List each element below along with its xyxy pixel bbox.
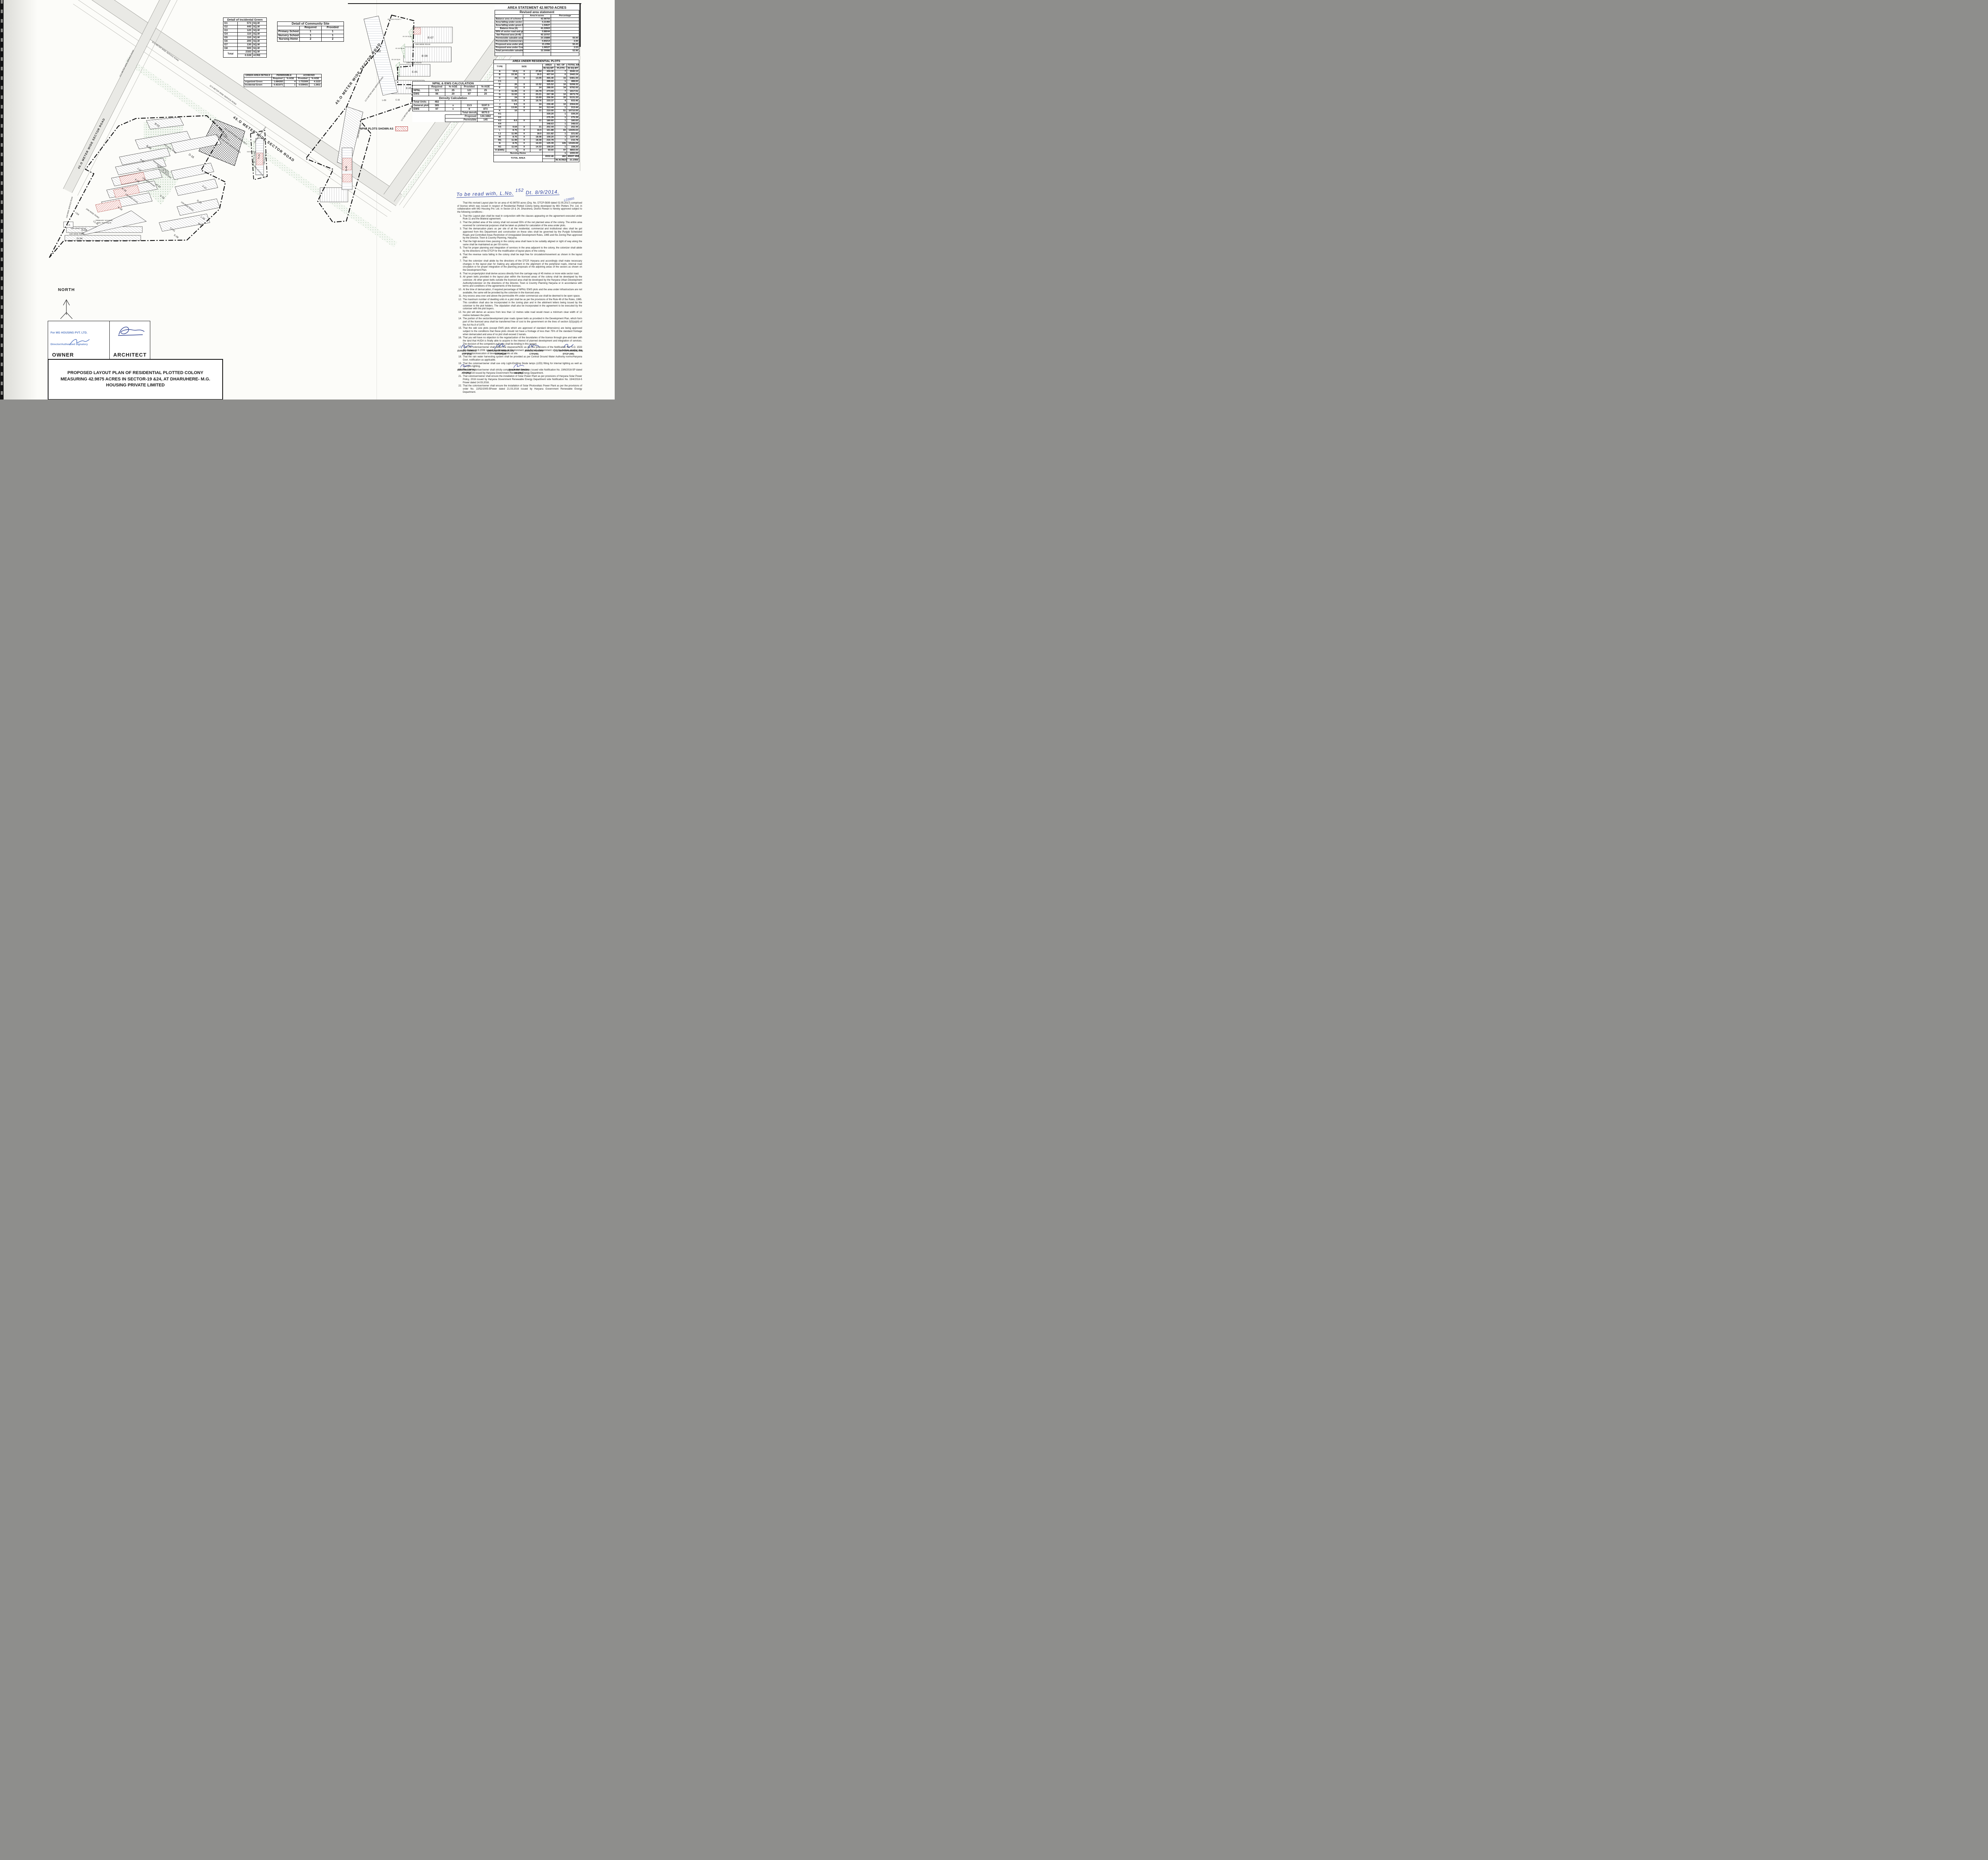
- table-cell: 202.44: [542, 126, 555, 129]
- table-cell: N1: [494, 145, 506, 149]
- plot-label: L-09: [382, 99, 386, 102]
- table-cell: 273.93: [542, 90, 555, 93]
- table-cell: G1: [223, 22, 238, 25]
- table-cell: [518, 122, 530, 126]
- note-item: That the plotted area of the colony shal…: [462, 221, 582, 227]
- table-cell: Balance Area (A): [495, 27, 523, 30]
- table-cell: 10: [555, 103, 567, 106]
- table-cell: 2: [299, 38, 322, 42]
- table-cell: Permisisble saleable area: [495, 37, 523, 40]
- table-row: Total Units482: [413, 100, 494, 104]
- table-row: G8500SQ.M: [223, 47, 267, 50]
- drawing-title-block: PROPOSED LAYOUT PLAN OF RESIDENTIAL PLOT…: [48, 359, 223, 400]
- table-cell: 13165.69: [567, 142, 579, 145]
- signatory-title: DTP (HQ): [457, 353, 476, 356]
- table-cell: X: [518, 97, 530, 100]
- table-cell: C1: [494, 80, 506, 83]
- col-header: NO. OF: [555, 64, 567, 67]
- table-cell: [518, 116, 530, 119]
- total-density-value: 6070.5: [478, 111, 494, 114]
- col-header: PLOTS: [555, 67, 567, 70]
- table-cell: 10: [506, 110, 518, 113]
- table-cell: Total permissible saleable area: [495, 49, 523, 52]
- table-cell: 365.40: [542, 77, 555, 80]
- signature-squiggle: [512, 363, 526, 369]
- table-cell: 8.75: [506, 136, 518, 139]
- table-cell: O (EWS): [494, 149, 506, 152]
- table-cell: 1.684283: [272, 80, 284, 83]
- scanner-film-strip: [0, 0, 4, 400]
- col-header: TYPE: [494, 64, 506, 70]
- table-cell: [530, 113, 543, 116]
- table-cell: 230.40: [542, 103, 555, 106]
- table-cell: 158.20: [542, 136, 555, 139]
- table-cell: 275.39: [542, 116, 555, 119]
- table-cell: C: [494, 77, 506, 80]
- signature-block: (T.L. SATYAPRAKASH, IAS) DTCP (HR): [554, 343, 583, 356]
- table-cell: 83: [555, 129, 567, 132]
- table-cell: N: [494, 142, 506, 145]
- table-cell: X: [518, 103, 530, 106]
- note-item: That the revenue rasta falling in the co…: [462, 254, 582, 260]
- note-item: All green belts provided in the layout p…: [462, 276, 582, 288]
- incidental-green-table: Detail of Incidental Green G1573SQ.MG244…: [223, 17, 267, 58]
- stamp-company: For MG HOUSING PVT. LTD.: [50, 332, 106, 334]
- table-cell: General plots: [413, 104, 429, 107]
- table-cell: X: [518, 145, 530, 149]
- table-row: G4110SQ.M: [223, 33, 267, 36]
- table-cell: G: [494, 93, 506, 96]
- table-cell: 221.82: [542, 132, 555, 136]
- nursing-home-plots: 1: [555, 152, 567, 155]
- table-row: D26X12.52325.52165208.32: [494, 83, 579, 87]
- table-row: Total permissible saleable area22.300865…: [495, 49, 579, 52]
- table-cell: 1: [555, 139, 567, 142]
- owner-signature: [67, 337, 91, 347]
- table-cell: 50.43: [551, 43, 579, 46]
- signature-block: (BALWANT SINGH) SD (HQ): [509, 363, 529, 375]
- table-cell: 210.00: [542, 110, 555, 113]
- table-cell: 5481.00: [567, 77, 579, 80]
- total-density-label: Total density: [461, 111, 478, 114]
- table-cell: SQ.M: [252, 33, 266, 36]
- table-row: B15.36X26.5407.0462442.24: [494, 74, 579, 77]
- total-unit: SQ.M: [252, 50, 266, 54]
- plot-label: D-16: [188, 153, 194, 159]
- table-row: Nursing Home22: [278, 38, 344, 42]
- table-cell: 26.5: [530, 74, 543, 77]
- plot-label: E-05: [412, 71, 417, 74]
- table-cell: 9.6: [506, 103, 518, 106]
- table-cell: 7: [555, 136, 567, 139]
- road-label: 45.O METER WIDE SECTOR ROAD: [334, 42, 382, 105]
- table-cell: 42.98750: [523, 17, 551, 21]
- table-cell: 41.22663: [523, 27, 551, 30]
- table-cell: 200: [238, 40, 252, 43]
- table-cell: 11.81: [506, 100, 518, 103]
- table-cell: 121: [461, 89, 478, 93]
- table-cell: 20: [445, 93, 461, 96]
- table-cell: 4: [284, 80, 296, 83]
- plot-label: L-52: [375, 50, 381, 53]
- col-header: SIZE: [506, 64, 542, 70]
- table-cell: 2673.79: [567, 93, 579, 96]
- table-cell: L1: [494, 132, 506, 136]
- community-site-table: Detail of Community Site Required Provid…: [277, 21, 344, 42]
- table-cell: 1107.40: [567, 136, 579, 139]
- area-statement-table: AREA STATEMENT 42.98750 ACRES Revised ar…: [495, 5, 579, 56]
- table-cell: G4: [223, 33, 238, 36]
- table-cell: 434.30: [542, 70, 555, 74]
- table-cell: 20: [555, 97, 567, 100]
- table-cell: 339.20: [542, 113, 555, 116]
- owner-label: OWNER: [52, 352, 74, 358]
- table-cell: 1: [555, 126, 567, 129]
- table-cell: X: [518, 83, 530, 87]
- table-cell: 18.5: [530, 129, 543, 132]
- table-cell: 25: [478, 89, 494, 93]
- table-cell: 348.63: [542, 122, 555, 126]
- note-item: That no property/plot shall derive acces…: [462, 273, 582, 276]
- table-cell: 13435.63: [567, 129, 579, 132]
- table-cell: NPNL: [413, 89, 429, 93]
- note-item: At the time of demarcation, if required …: [462, 289, 582, 295]
- table-row: NPNL1212512125: [413, 89, 494, 93]
- table-row: N111.04X14.33158.201158.20: [494, 145, 579, 149]
- table-cell: 1: [284, 83, 296, 87]
- table-cell: [530, 80, 543, 83]
- plot-label: G8 500 SQ.M.: [247, 151, 256, 153]
- table-cell: I: [494, 100, 506, 103]
- table-cell: 14.33: [530, 145, 543, 149]
- table-row: 50% of sector road and green belt (B)0.8…: [495, 30, 579, 33]
- table-cell: 500: [238, 47, 252, 50]
- note-item: That the odd size plots (except EWS plot…: [462, 327, 582, 336]
- signatory-name: (BALWANT SINGH): [509, 369, 529, 372]
- table-cell: x: [445, 104, 461, 107]
- table-cell: 9: [461, 107, 478, 111]
- table-row: G2440SQ.M: [223, 25, 267, 29]
- table-cell: 21: [530, 126, 543, 129]
- table-cell: M1: [494, 139, 506, 142]
- table-cell: 130: [238, 43, 252, 47]
- table-cell: 9.64: [506, 126, 518, 129]
- table-cell: K5: [494, 126, 506, 129]
- table-cell: 488.60: [567, 80, 579, 83]
- permissible-value: 145: [478, 118, 494, 122]
- table-row: J113.06X24313.441313.44: [494, 106, 579, 109]
- table-row: Area falling under green belt1.54627: [495, 24, 579, 27]
- table-cell: 7: [555, 90, 567, 93]
- table-row: Incidental Green0.42107110.5394311.2811: [244, 83, 322, 87]
- table-row: N8.75X14.33125.3910513165.69: [494, 142, 579, 145]
- table-cell: 52.96: [551, 49, 579, 52]
- north-arrow-icon: [60, 300, 72, 319]
- table-row: EWS96209720: [413, 93, 494, 96]
- table-row: Proposed area under plots21.235650.43: [495, 43, 579, 46]
- table-cell: 1: [555, 122, 567, 126]
- table-cell: 10: [530, 149, 543, 152]
- table-cell: Primary School: [278, 30, 300, 34]
- npnl-legend: NPNL PLOTS SHOWN AS: [360, 126, 408, 131]
- table-cell: SQ.M: [252, 40, 266, 43]
- table-cell: 34: [555, 87, 567, 90]
- table-cell: 24: [530, 87, 543, 90]
- table-row: L8.75X18.5161.888313435.63: [494, 129, 579, 132]
- table-cell: M: [494, 136, 506, 139]
- handwritten-date: Dt. 8/9/2014.: [526, 189, 559, 196]
- table-cell: 233.37: [542, 100, 555, 103]
- table-cell: 440: [238, 25, 252, 29]
- table-cell: [478, 100, 494, 104]
- table-cell: 0.539431: [297, 83, 309, 87]
- plot-label: E-07: [428, 37, 434, 39]
- nursing-home-total: 1000.00: [567, 152, 579, 155]
- table-cell: 1917.51: [567, 90, 579, 93]
- plot-label: C-16: [396, 99, 400, 101]
- table-row: C28X13.05365.40155481.00: [494, 77, 579, 80]
- table-cell: 158.20: [542, 145, 555, 149]
- table-cell: X: [518, 74, 530, 77]
- table-cell: 18.08: [530, 139, 543, 142]
- architect-label: ARCHITECT: [113, 352, 147, 358]
- table-cell: G7: [223, 43, 238, 47]
- table-cell: X: [518, 70, 530, 74]
- table-cell: G6: [223, 40, 238, 43]
- col-header: %-AGE: [284, 77, 296, 80]
- table-cell: Proposed area under plots: [495, 43, 523, 46]
- table-cell: 97: [555, 149, 567, 152]
- table-cell: 24: [530, 106, 543, 109]
- group-header: PERMISSIBLE: [272, 74, 297, 78]
- architect-signature: [115, 324, 147, 338]
- in-acres-value: 21.2356: [567, 159, 579, 162]
- table-cell: 8.75: [506, 142, 518, 145]
- col-header: Percentage: [551, 14, 579, 17]
- table-row: G3120SQ.M: [223, 29, 267, 33]
- table-cell: 385: [429, 104, 445, 107]
- table-cell: 573: [238, 22, 252, 25]
- table-cell: 0.88044: [523, 30, 551, 33]
- table-cell: 2: [322, 38, 344, 42]
- grand-total-sqmt: 85937.4588: [567, 155, 579, 159]
- table-cell: 50.00: [542, 149, 555, 152]
- table-cell: 202.44: [567, 126, 579, 129]
- plot-label: E-05: [406, 87, 412, 90]
- signatory-name: (BABITA GUPTA): [457, 369, 475, 372]
- signature-block: (SANJAY KUMAR) DTP (HQ): [457, 343, 476, 356]
- table-cell: 9792.00: [567, 87, 579, 90]
- table-title: AREA UNDER RESIDENTIAL PLOTS: [494, 60, 579, 64]
- signatory-name: (SANJAY KUMAR): [457, 350, 476, 353]
- col-header: Required: [272, 77, 284, 80]
- table-cell: 4.1122: [309, 80, 321, 83]
- table-title: GREEN AREA DETAILS: [244, 74, 272, 78]
- table-cell: 1: [322, 34, 344, 38]
- table-cell: 1: [555, 106, 567, 109]
- north-label: NORTH: [52, 287, 81, 292]
- table-cell: 25: [445, 89, 461, 93]
- npnl-legend-label: NPNL PLOTS SHOWN AS: [360, 128, 393, 130]
- table-cell: 11.99: [506, 132, 518, 136]
- table-cell: [461, 100, 478, 104]
- note-item: No plot will derive an access from less …: [462, 311, 582, 317]
- table-cell: 13.5: [461, 104, 478, 107]
- signatory-title: STP(HQ)M: [487, 353, 514, 356]
- table-row: I11.81X19.76233.374933.46: [494, 100, 579, 103]
- table-row: Area falling under sector road0.21460: [495, 21, 579, 24]
- table-cell: 313.44: [542, 106, 555, 109]
- table-cell: 10710.00: [567, 110, 579, 113]
- table-cell: 110: [238, 36, 252, 40]
- table-cell: K1: [494, 113, 506, 116]
- table-row: EWS97x9873: [413, 107, 494, 111]
- table-cell: 120: [238, 29, 252, 33]
- table-cell: 15.6: [506, 70, 518, 74]
- signature-squiggle: [460, 343, 474, 350]
- scanned-layout-plan-sheet: 45.O METER WIDE SECTOR ROAD 12.5 METER W…: [0, 0, 615, 400]
- table-cell: 55.00: [551, 37, 579, 40]
- plot-label: M.B.: [252, 161, 256, 163]
- plot-label: 4091.7647 SQ.M.: [97, 222, 112, 224]
- owner-architect-block: For MG HOUSING PVT. LTD. Director/Author…: [48, 321, 150, 360]
- table-cell: X: [518, 93, 530, 96]
- table-cell: H: [494, 97, 506, 100]
- table-cell: X: [518, 149, 530, 152]
- permissible-label: Permisible: [445, 118, 478, 122]
- table-cell: K3: [494, 119, 506, 122]
- table-cell: 21: [530, 119, 543, 122]
- table-cell: 1: [555, 116, 567, 119]
- table-cell: X: [518, 132, 530, 136]
- table-cell: 1: [555, 145, 567, 149]
- table-cell: [551, 30, 579, 33]
- table-cell: 933.46: [567, 100, 579, 103]
- table-cell: 24.79: [530, 90, 543, 93]
- table-cell: L: [494, 129, 506, 132]
- table-cell: [518, 80, 530, 83]
- signatory-name: (KAMAL KUMAR): [525, 350, 543, 353]
- table-cell: 22.30086: [523, 49, 551, 52]
- table-cell: 2.53: [551, 46, 579, 49]
- table-cell: 11.99: [506, 139, 518, 142]
- group-header: ACHIEVED: [297, 74, 322, 78]
- col-header: IN SQ.MT: [567, 67, 579, 70]
- table-row: Permisisble saleable area23.1588955.00: [495, 37, 579, 40]
- col-header: Provided: [322, 26, 344, 30]
- table-row: L111.99X18.5221.821221.82: [494, 132, 579, 136]
- table-cell: Balance area of scheme = 51.10625 - 8.11…: [495, 17, 523, 21]
- proposed-value: 144.1682: [478, 114, 494, 118]
- table-row: F11.05X24.79273.9371917.51: [494, 90, 579, 93]
- table-cell: Nursery School: [278, 34, 300, 38]
- table-cell: 407.04: [542, 74, 555, 77]
- proposed-label: Proposed: [445, 114, 478, 118]
- table-cell: 1.2811: [309, 83, 321, 87]
- table-cell: 0.84214: [523, 40, 551, 43]
- npnl-ews-table: NPNL & EWS CALCULATION Required %-AGE Pr…: [412, 81, 494, 122]
- table-cell: 1: [322, 30, 344, 34]
- signature-squiggle: [561, 343, 576, 350]
- table-cell: 14.33: [530, 142, 543, 145]
- plot-label: O-58: [82, 229, 87, 232]
- table-row: Nursery School11: [278, 34, 344, 38]
- col-header: %-AGE: [478, 85, 494, 89]
- table-cell: 15: [555, 77, 567, 80]
- table-cell: [551, 17, 579, 21]
- table-cell: 339.20: [567, 113, 579, 116]
- signature-squiggle: [459, 363, 473, 369]
- table-cell: [506, 80, 518, 83]
- table-cell: 13.05: [530, 77, 543, 80]
- table-cell: 42.10707: [523, 33, 551, 37]
- table-cell: 1: [555, 80, 567, 83]
- table-cell: J1: [494, 106, 506, 109]
- col-header: Area In acres: [523, 14, 551, 17]
- table-cell: X: [518, 126, 530, 129]
- table-cell: organized Green: [244, 80, 272, 83]
- table-row: K2275.391275.39: [494, 116, 579, 119]
- table-cell: X: [518, 119, 530, 122]
- note-item: That coloniser/owner shall ensure the in…: [462, 375, 582, 384]
- table-cell: 24: [506, 97, 518, 100]
- table-cell: Net Planned area (A+B): [495, 33, 523, 37]
- table-cell: 12.52: [530, 83, 543, 87]
- table-cell: 288.00: [542, 87, 555, 90]
- table-cell: X: [518, 129, 530, 132]
- table-cell: Area falling under green belt: [495, 24, 523, 27]
- table-cell: 97: [461, 93, 478, 96]
- table-cell: 4850.00: [567, 149, 579, 152]
- table-row: J9.6X24230.40102304.00: [494, 103, 579, 106]
- table-row: K38.6X21180.601180.60: [494, 119, 579, 122]
- table-cell: 110: [238, 33, 252, 36]
- table-cell: [530, 122, 543, 126]
- table-cell: K2: [494, 116, 506, 119]
- signature-squiggle: [527, 343, 541, 350]
- table-cell: 488.60: [542, 80, 555, 83]
- table-cell: G8: [223, 47, 238, 50]
- table-cell: 5197.5: [478, 104, 494, 107]
- table-cell: Total Units: [413, 100, 429, 104]
- table-cell: 20: [478, 93, 494, 96]
- table-cell: 313.44: [567, 106, 579, 109]
- table-cell: 7: [555, 70, 567, 74]
- table-cell: 8.75: [506, 129, 518, 132]
- table-cell: [551, 21, 579, 24]
- table-row: K59.64X21202.441202.44: [494, 126, 579, 129]
- area-statement-subtitle: Revised area statement: [495, 10, 579, 15]
- plot-label: O-34: [77, 237, 83, 240]
- table-cell: 125.39: [542, 142, 555, 145]
- road-label: 12.O METER WIDE SERVICE ROAD: [364, 76, 384, 102]
- table-cell: X: [518, 110, 530, 113]
- signatory-name: (DEVENDRA NIMBOKAR): [487, 350, 514, 353]
- table-cell: X: [518, 142, 530, 145]
- handwritten-number: 152: [515, 188, 524, 193]
- table-row: Net Planned area (A+B)42.10707: [495, 33, 579, 37]
- table-cell: 21: [530, 110, 543, 113]
- table-cell: 1: [555, 132, 567, 136]
- table-title: NPNL & EWS CALCULATION: [413, 81, 494, 85]
- col-header: Provided: [297, 77, 309, 80]
- table-cell: 482: [429, 100, 445, 104]
- table-cell: 4: [555, 100, 567, 103]
- plot-label: G5 110 SQ.M.: [392, 59, 401, 60]
- table-row: A15.6X27.84434.3073040.13: [494, 70, 579, 74]
- signature-block: (KAMAL KUMAR) CTP(HR): [525, 343, 543, 356]
- road-label: 12M WIDE ROAD: [406, 62, 422, 64]
